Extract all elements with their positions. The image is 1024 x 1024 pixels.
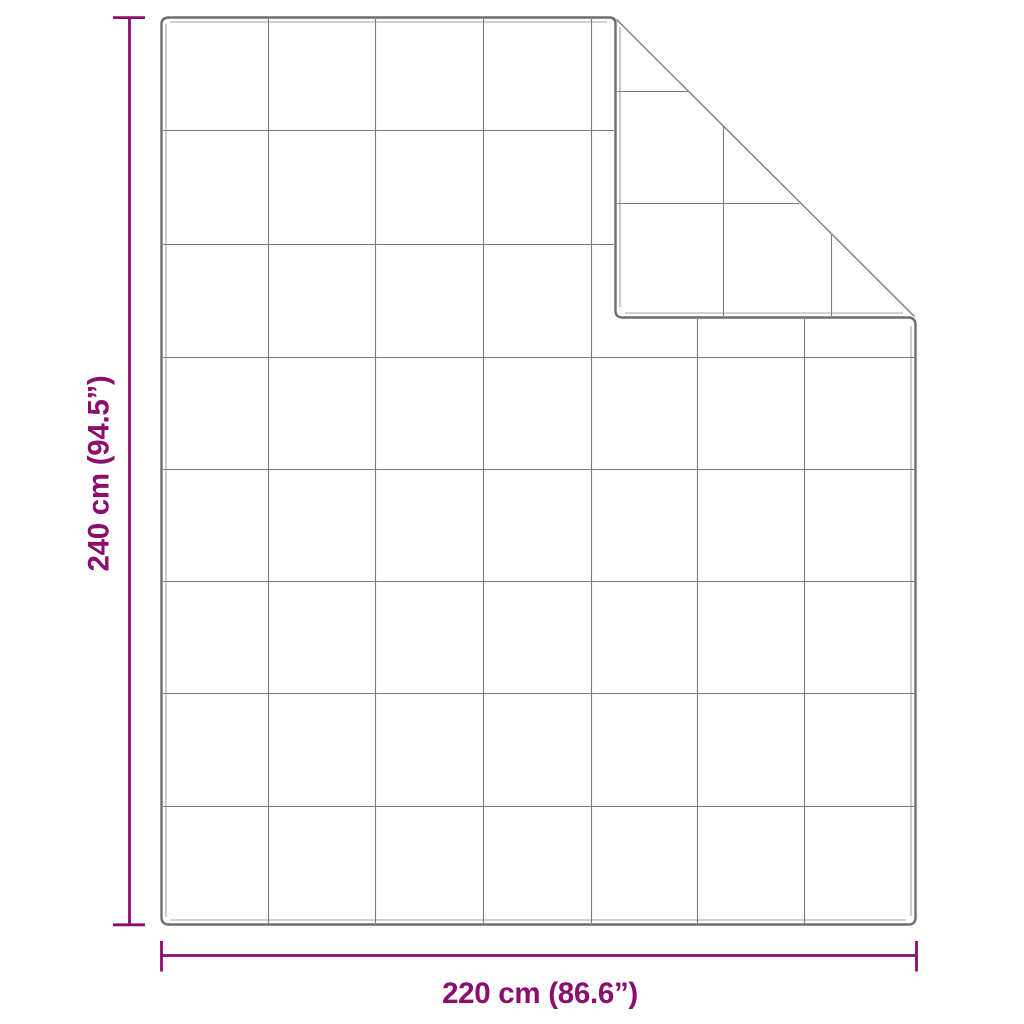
svg-text:240 cm (94.5”): 240 cm (94.5”)	[83, 376, 116, 572]
svg-text:220 cm (86.6”): 220 cm (86.6”)	[442, 977, 638, 1010]
